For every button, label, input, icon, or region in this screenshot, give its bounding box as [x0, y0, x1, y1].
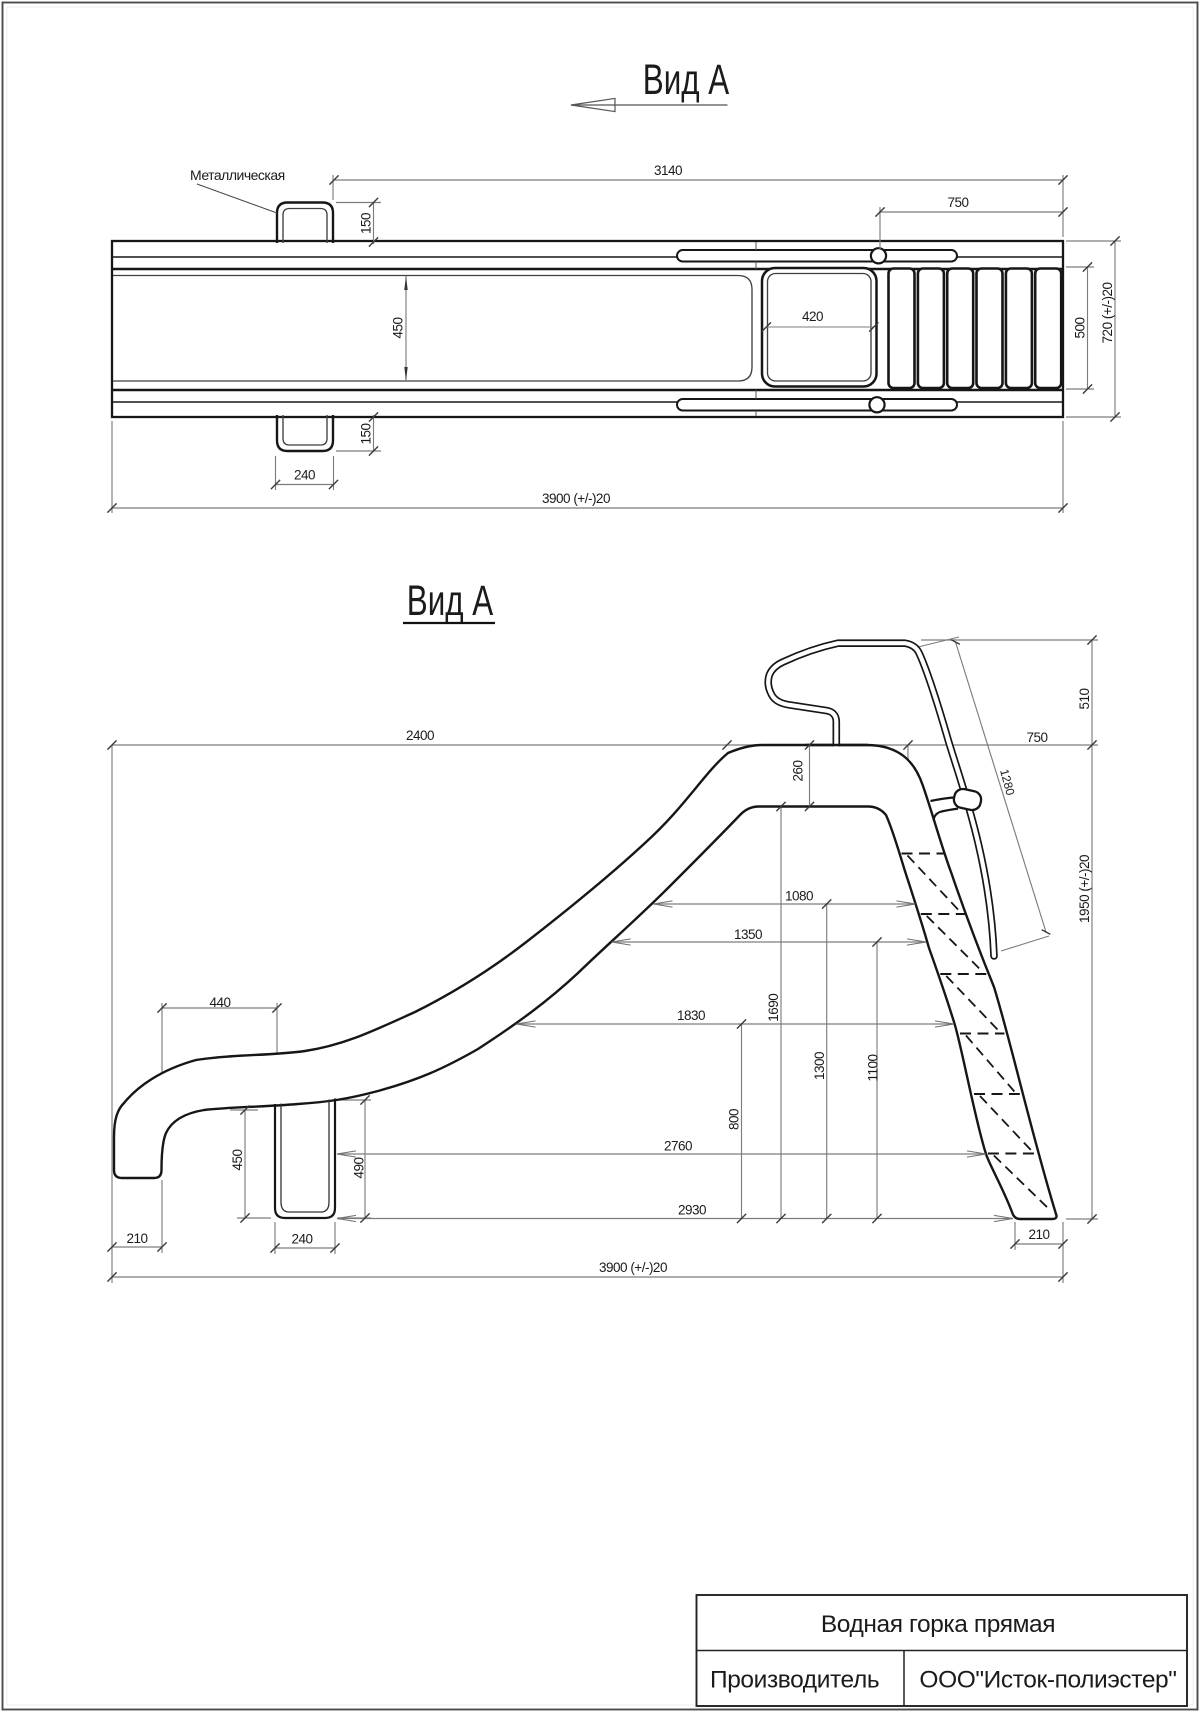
svg-text:800: 800 [727, 1109, 742, 1130]
svg-text:2930: 2930 [678, 1203, 706, 1218]
svg-text:1100: 1100 [865, 1054, 880, 1081]
svg-text:210: 210 [126, 1231, 147, 1246]
svg-text:Вид А: Вид А [407, 576, 494, 624]
svg-text:720 (+/-)20: 720 (+/-)20 [1100, 283, 1115, 344]
svg-text:440: 440 [209, 995, 230, 1010]
svg-text:490: 490 [352, 1157, 367, 1178]
svg-text:450: 450 [391, 317, 406, 338]
svg-text:240: 240 [294, 468, 315, 483]
svg-text:1830: 1830 [677, 1008, 705, 1023]
svg-text:510: 510 [1077, 688, 1092, 709]
svg-text:420: 420 [802, 309, 823, 324]
svg-text:1690: 1690 [766, 994, 781, 1022]
svg-text:150: 150 [359, 213, 374, 234]
svg-text:210: 210 [1028, 1227, 1049, 1242]
svg-text:2400: 2400 [406, 728, 434, 743]
svg-text:750: 750 [1026, 730, 1047, 745]
svg-text:450: 450 [230, 1149, 245, 1170]
svg-text:3140: 3140 [654, 163, 682, 178]
svg-text:1350: 1350 [734, 927, 762, 942]
svg-text:Металлическая: Металлическая [190, 167, 285, 183]
svg-text:3900 (+/-)20: 3900 (+/-)20 [542, 491, 610, 506]
svg-text:1950 (+/-)20: 1950 (+/-)20 [1077, 855, 1092, 923]
svg-text:150: 150 [359, 423, 374, 444]
svg-text:240: 240 [291, 1232, 312, 1247]
svg-text:3900 (+/-)20: 3900 (+/-)20 [599, 1260, 667, 1275]
svg-text:Водная горка прямая: Водная горка прямая [821, 1611, 1055, 1638]
svg-text:750: 750 [947, 195, 968, 210]
svg-text:260: 260 [791, 760, 806, 781]
svg-text:2760: 2760 [664, 1139, 692, 1154]
svg-text:ООО"Исток-полиэстер": ООО"Исток-полиэстер" [919, 1667, 1176, 1694]
svg-text:Производитель: Производитель [710, 1667, 879, 1694]
svg-text:1080: 1080 [785, 889, 813, 904]
svg-text:Вид А: Вид А [643, 55, 730, 103]
svg-text:1280: 1280 [997, 767, 1018, 797]
svg-text:500: 500 [1073, 317, 1088, 338]
svg-text:1300: 1300 [812, 1052, 827, 1080]
